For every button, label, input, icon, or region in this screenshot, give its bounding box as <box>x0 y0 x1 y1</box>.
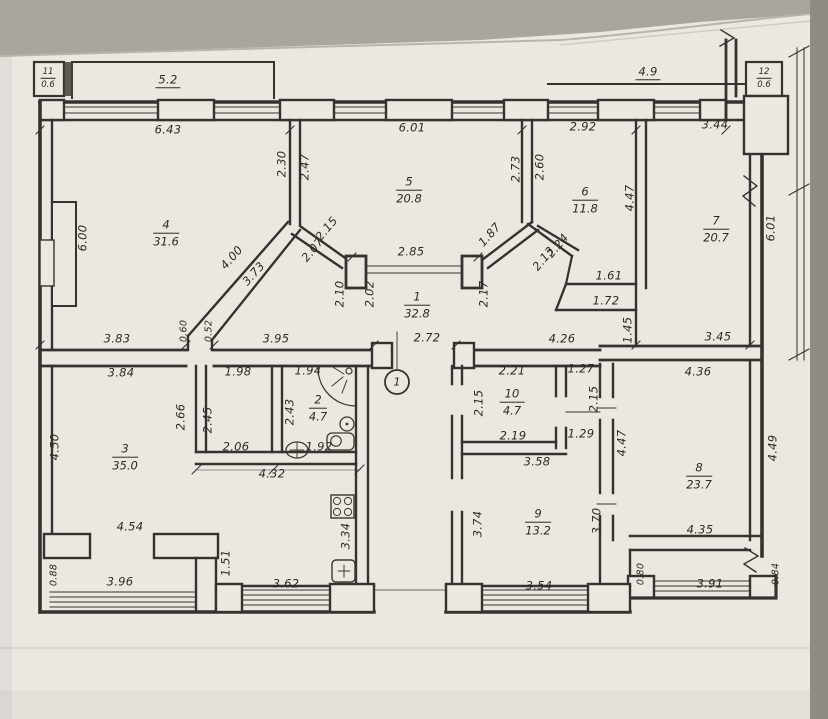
floor-plan-photo: 5.24.96.436.012.923.442.302.472.732.604.… <box>0 0 828 719</box>
entrance-axis-number: 1 <box>394 376 401 389</box>
entrance-axis-marker: 1 <box>394 376 401 389</box>
wall-niche <box>52 202 76 306</box>
pillar <box>462 256 482 288</box>
pillar <box>346 256 366 288</box>
floor-plan-drawing <box>0 0 828 719</box>
